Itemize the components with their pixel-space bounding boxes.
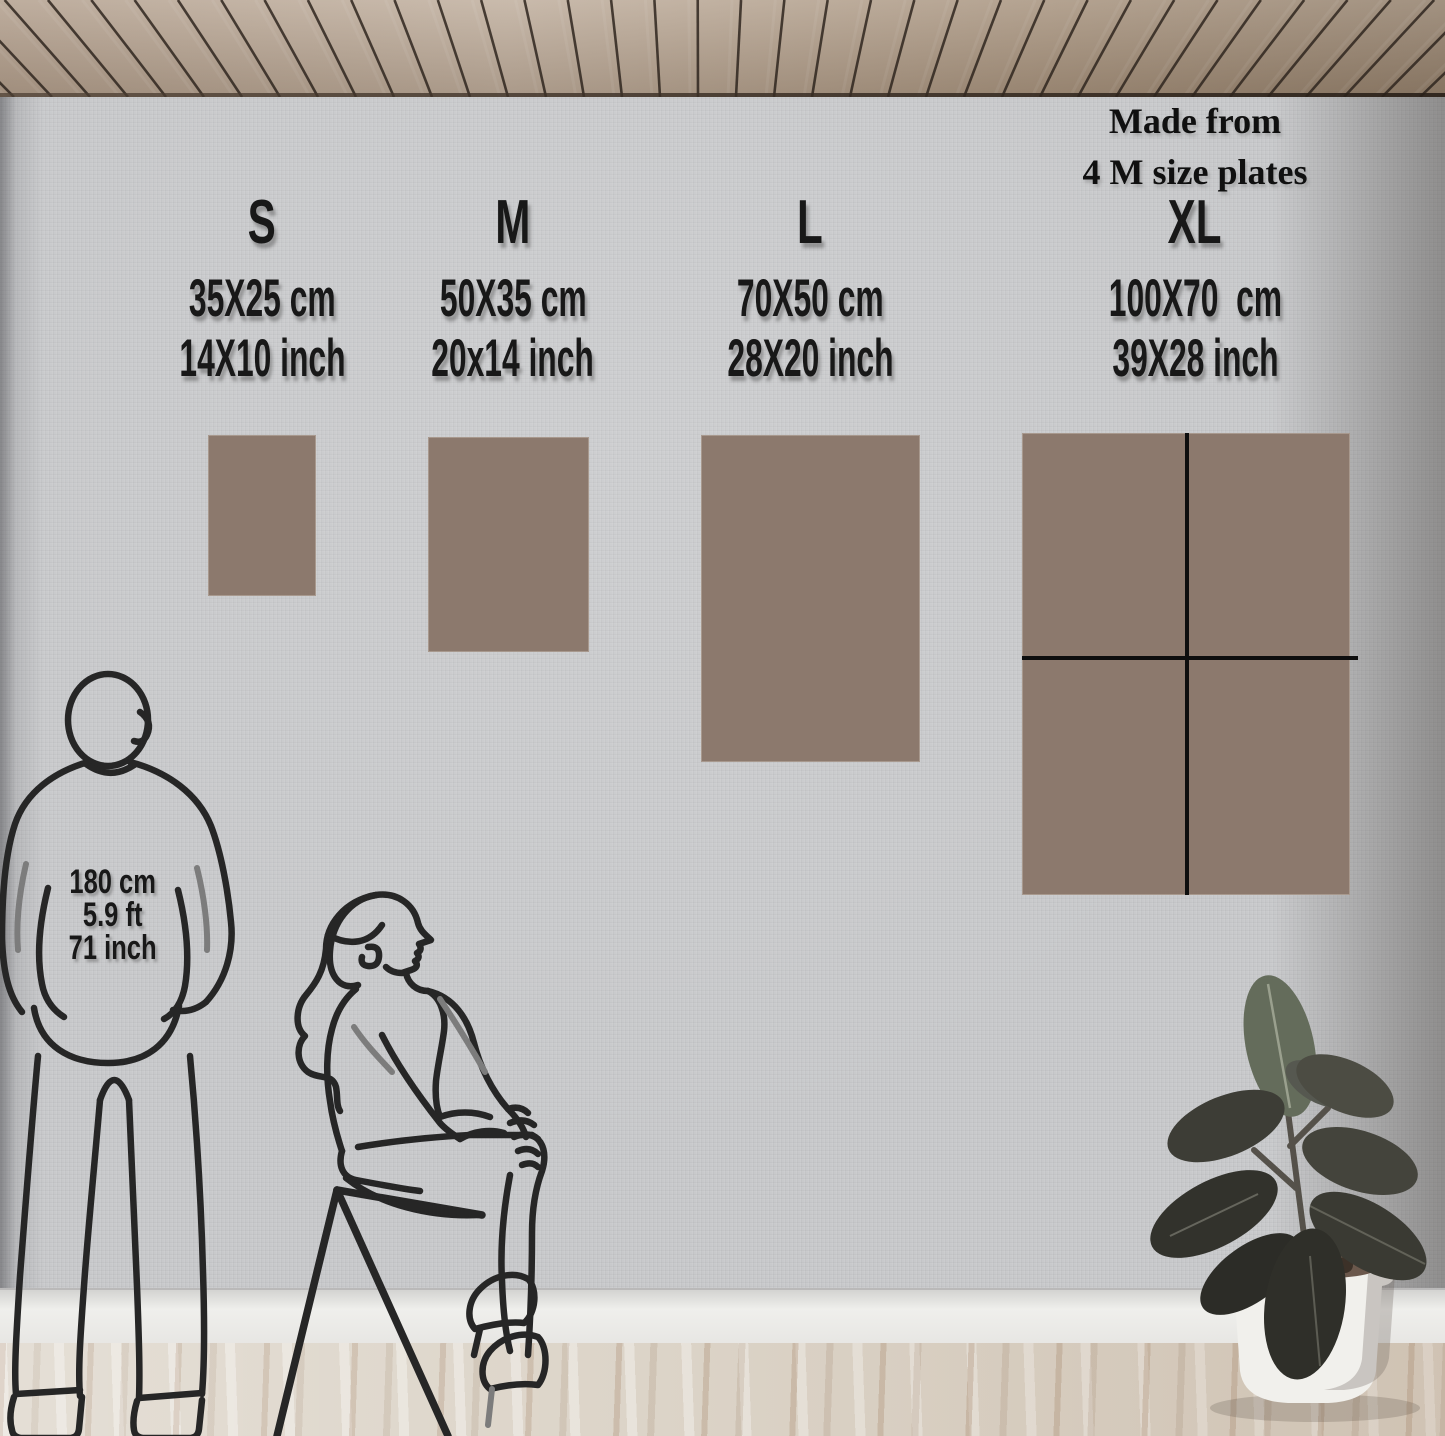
size-letter-l: L (660, 192, 960, 254)
size-inch-l: 28X20 inch (660, 332, 960, 385)
woman-far-arm (382, 1035, 460, 1139)
size-column-xl: XL 100X70 cm 39X28 inch (1045, 0, 1345, 420)
xl-panel-vertical-divider (1185, 433, 1189, 895)
woman-shoe-2 (483, 1335, 546, 1389)
stool-left-leg (277, 1190, 337, 1436)
man-pants-split (100, 1080, 129, 1100)
stool-right-leg (337, 1190, 448, 1436)
size-cm-m: 50X35 cm (363, 272, 663, 325)
man-right-cuff (139, 1393, 202, 1398)
size-panel-m (428, 437, 589, 652)
sitting-woman-figure (270, 885, 615, 1436)
man-ear (134, 712, 149, 742)
size-guide-scene: Made from 4 M size plates S 35X25 cm 14X… (0, 0, 1445, 1436)
man-right-shoe (133, 1400, 202, 1436)
size-panel-xl (1022, 433, 1350, 895)
man-head (68, 674, 148, 766)
woman-back (327, 989, 356, 1151)
size-letter-m: M (363, 192, 663, 254)
woman-lap (358, 1135, 532, 1147)
size-panel-s (208, 435, 316, 596)
potted-plant-image (1130, 936, 1440, 1436)
height-inch: 71 inch (30, 932, 195, 965)
size-cm-xl: 100X70 cm (1045, 272, 1345, 325)
size-cm-l: 70X50 cm (660, 272, 960, 325)
person-height-label: 180 cm 5.9 ft 71 inch (30, 866, 195, 965)
man-left-cuff (16, 1390, 80, 1394)
man-left-shoe (10, 1397, 82, 1436)
size-panel-l (701, 435, 920, 762)
standing-man-figure (0, 650, 240, 1436)
plant-leaves (1137, 969, 1440, 1385)
woman-ear (362, 947, 379, 966)
height-cm: 180 cm (30, 866, 195, 899)
height-ft: 5.9 ft (30, 899, 195, 932)
woman-torso-front (428, 991, 444, 1117)
size-letter-xl: XL (1045, 192, 1345, 254)
size-inch-m: 20x14 inch (363, 332, 663, 385)
xl-panel-horizontal-divider (1022, 656, 1358, 660)
size-column-m: M 50X35 cm 20x14 inch (363, 0, 663, 420)
size-column-l: L 70X50 cm 28X20 inch (660, 0, 960, 420)
size-inch-xl: 39X28 inch (1045, 332, 1345, 385)
